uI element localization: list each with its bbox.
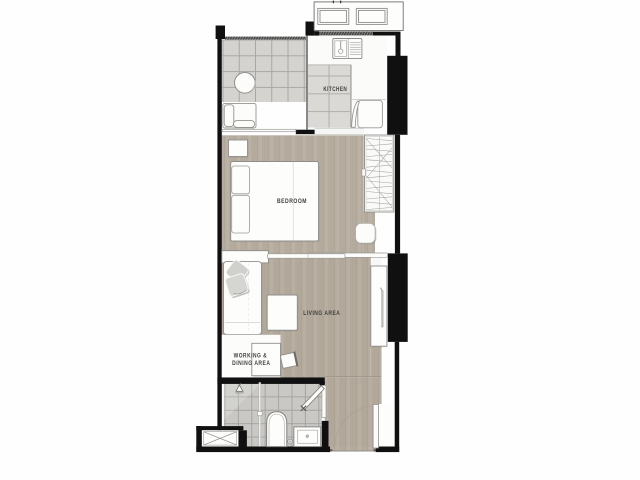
svg-text:BEDROOM: BEDROOM <box>277 199 307 205</box>
svg-text:WORKING &: WORKING & <box>234 354 268 360</box>
svg-text:DINING AREA: DINING AREA <box>232 361 270 367</box>
svg-text:KITCHEN: KITCHEN <box>323 87 347 93</box>
svg-text:LIVING AREA: LIVING AREA <box>303 311 340 317</box>
